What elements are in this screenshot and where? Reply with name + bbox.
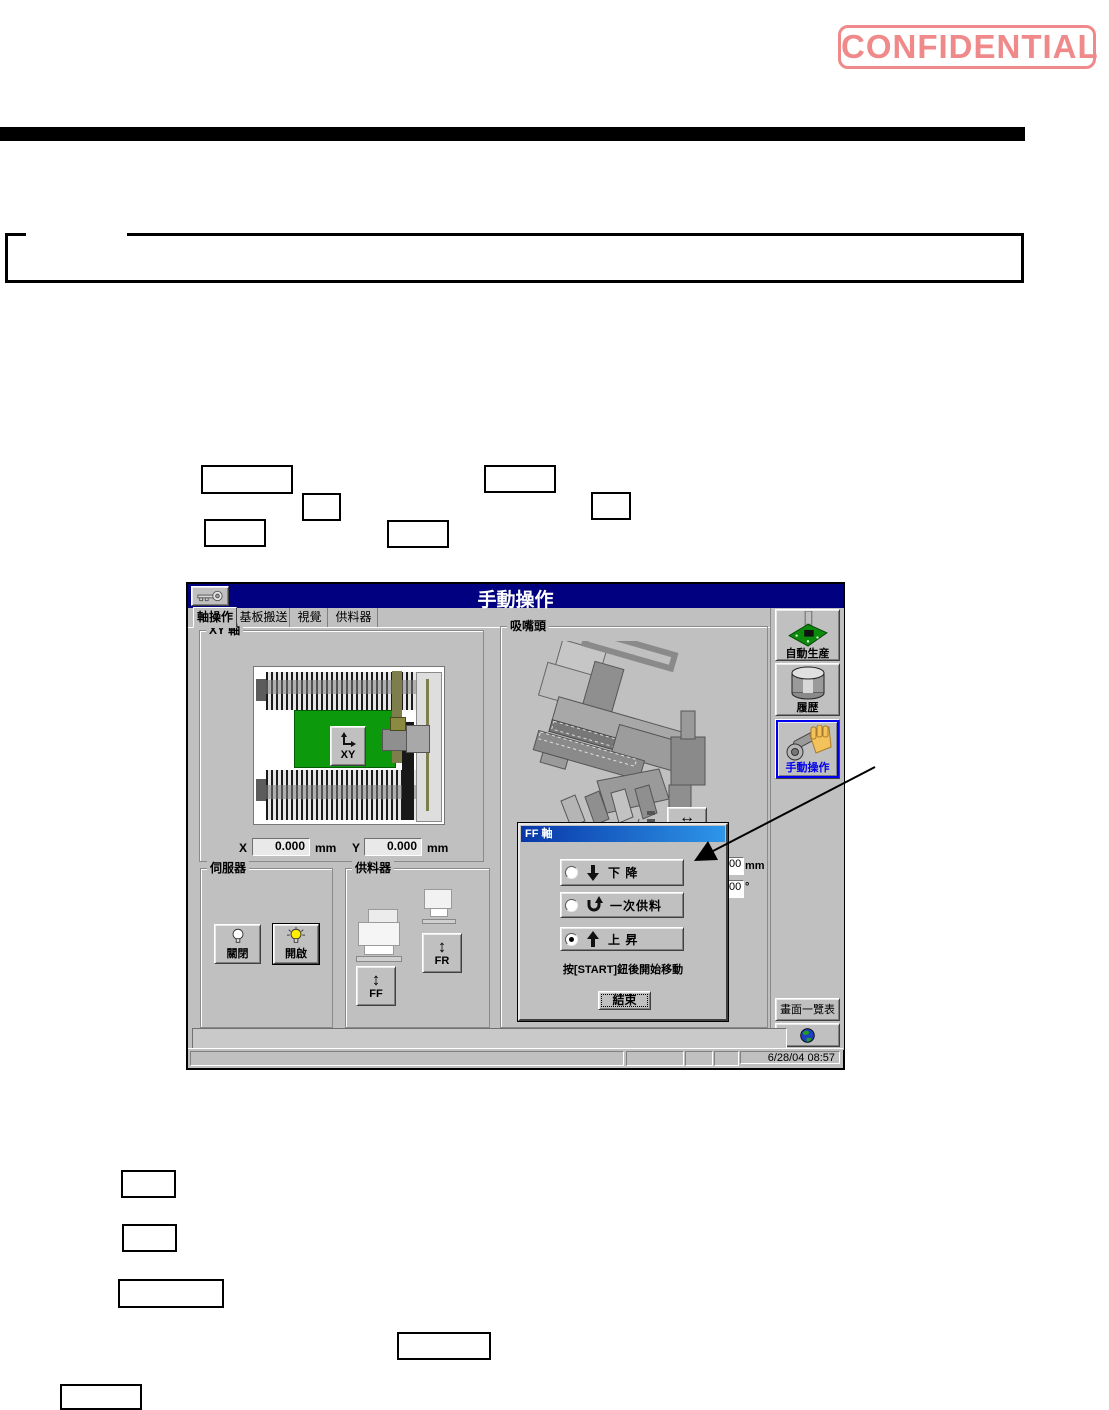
front-feeder-image (356, 909, 402, 963)
status-cell (190, 1051, 624, 1066)
u-turn-arrow-icon (584, 896, 604, 914)
head-carriage-block (390, 717, 406, 731)
option-feed-once-button[interactable]: 一次供料 (560, 892, 684, 918)
option-up-button[interactable]: 上 昇 (560, 927, 684, 951)
status-cell (685, 1051, 713, 1066)
tab-feeder[interactable]: 供料器 (330, 608, 378, 627)
y-label: Y (352, 841, 360, 855)
confidential-stamp: CONFIDENTIAL (838, 25, 1096, 69)
sidebar-auto-production-button[interactable]: 自動生産 (775, 609, 840, 661)
tab-board-transfer[interactable]: 基板搬送 (238, 608, 290, 627)
feeder-panel-label: 供料器 (352, 861, 394, 875)
servo-off-label: 關閉 (227, 945, 249, 961)
screen-list-button[interactable]: 畫面一覽表 (775, 998, 840, 1021)
placeholder-box (204, 519, 266, 547)
head-carriage (406, 725, 430, 753)
clipped-r-unit: ° (745, 881, 749, 893)
down-arrow-icon (584, 864, 602, 882)
placeholder-box (387, 520, 449, 548)
auto-production-icon (784, 611, 832, 647)
y-unit: mm (427, 841, 448, 855)
feeder-bank-shade (266, 680, 432, 694)
xy-axis-panel: XY 軸 XY (199, 630, 484, 862)
placeholder-box (60, 1384, 142, 1410)
tab-axis-operation[interactable]: 軸操作 (193, 607, 237, 628)
status-cell (626, 1051, 684, 1066)
fr-feeder-label: FR (435, 955, 450, 967)
bulb-off-icon (229, 927, 247, 945)
status-bar: 6/28/04 08:57 (188, 1048, 843, 1067)
globe-icon (799, 1027, 816, 1044)
sidebar-auto-production-label: 自動生産 (786, 648, 830, 660)
xy-jog-button[interactable]: XY (330, 726, 366, 766)
start-hint-text: 按[START]鈕後開始移動 (520, 961, 726, 977)
feeder-panel: 供料器 ↕ FF ↕ FR (345, 868, 490, 1028)
status-datetime: 6/28/04 08:57 (740, 1051, 840, 1064)
placeholder-box (484, 465, 556, 493)
ff-feeder-label: FF (369, 988, 382, 1000)
window-title-bar: 手動操作 (188, 584, 843, 608)
screen-list-label: 畫面一覽表 (780, 1004, 835, 1016)
placeholder-box (122, 1224, 177, 1252)
servo-on-label: 開啟 (285, 945, 307, 961)
up-down-arrow-icon: ↕ (372, 972, 381, 988)
nozzle-head-panel-label: 吸嘴頭 (507, 619, 549, 633)
heading-box-gap (26, 231, 127, 239)
servo-off-button[interactable]: 關閉 (214, 924, 261, 964)
option-down-button[interactable]: 下 降 (560, 859, 684, 886)
option-up-radio[interactable] (565, 933, 578, 946)
x-unit: mm (315, 841, 336, 855)
placeholder-box (121, 1170, 176, 1198)
machine-part (256, 679, 266, 701)
xy-jog-button-label: XY (341, 749, 356, 761)
option-down-radio[interactable] (565, 866, 578, 879)
option-up-label: 上 昇 (608, 931, 638, 948)
tab-vision[interactable]: 視覺 (292, 608, 328, 627)
fr-feeder-button[interactable]: ↕ FR (422, 933, 462, 973)
section-heading-box (5, 233, 1024, 283)
message-bar (192, 1028, 787, 1049)
top-black-bar (0, 127, 1025, 141)
sidebar-history-label: 履歴 (797, 702, 819, 714)
servo-panel-label: 伺服器 (207, 861, 249, 875)
status-cell (714, 1051, 739, 1066)
annotation-arrow (680, 755, 890, 870)
placeholder-box (591, 492, 631, 520)
option-down-label: 下 降 (608, 864, 638, 881)
xy-axes-icon (339, 731, 357, 749)
end-button[interactable]: 結束 (598, 991, 651, 1010)
ff-feeder-button[interactable]: ↕ FF (356, 966, 396, 1006)
placeholder-box (201, 465, 293, 494)
x-label: X (239, 841, 247, 855)
bulb-on-icon (286, 927, 306, 945)
history-database-icon (786, 665, 830, 701)
feeder-bank-shade (266, 785, 424, 799)
sidebar-history-button[interactable]: 履歴 (775, 663, 840, 716)
option-feed-once-radio[interactable] (565, 899, 578, 912)
placeholder-box (302, 493, 341, 521)
servo-panel: 伺服器 關閉 開啟 (200, 868, 333, 1028)
placeholder-box (397, 1332, 491, 1360)
clipped-r-field: 00 (728, 880, 744, 898)
servo-on-button[interactable]: 開啟 (273, 924, 319, 964)
x-position-field[interactable]: 0.000 (252, 838, 310, 856)
rear-feeder-image (422, 889, 456, 927)
placeholder-box (118, 1279, 224, 1308)
machine-part (256, 779, 266, 801)
up-down-arrow-icon: ↕ (438, 939, 447, 955)
up-arrow-icon (584, 930, 602, 948)
y-position-field[interactable]: 0.000 (364, 838, 422, 856)
machine-top-view: XY (253, 666, 445, 825)
option-feed-once-label: 一次供料 (610, 897, 662, 914)
